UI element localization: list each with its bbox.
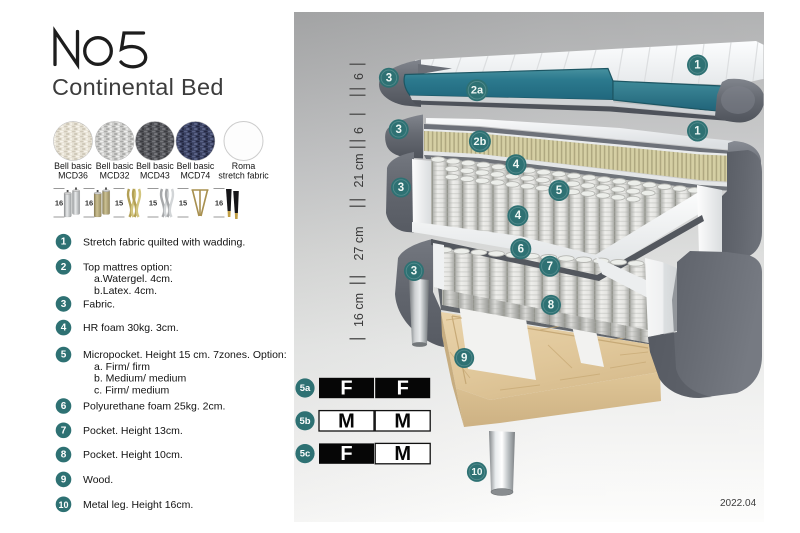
svg-text:Bell basic: Bell basic: [136, 161, 174, 171]
svg-text:7: 7: [547, 261, 553, 273]
svg-text:15: 15: [179, 199, 187, 208]
svg-text:Pocket. Height 10cm.: Pocket. Height 10cm.: [83, 449, 183, 461]
svg-text:M: M: [338, 410, 355, 432]
svg-text:8: 8: [61, 450, 67, 461]
svg-text:F: F: [340, 378, 352, 400]
svg-text:6: 6: [352, 127, 366, 134]
svg-text:F: F: [340, 443, 352, 465]
svg-text:5: 5: [61, 350, 67, 361]
svg-text:1: 1: [694, 126, 701, 138]
svg-text:6: 6: [61, 401, 67, 412]
svg-text:Metal leg. Height 16cm.: Metal leg. Height 16cm.: [83, 499, 193, 511]
svg-text:10: 10: [471, 467, 483, 478]
svg-text:2: 2: [61, 262, 67, 273]
svg-text:5b: 5b: [299, 416, 310, 427]
svg-text:Bell basic: Bell basic: [96, 161, 134, 171]
svg-text:M: M: [394, 443, 411, 465]
svg-text:8: 8: [548, 299, 555, 311]
svg-text:9: 9: [61, 474, 67, 485]
svg-text:Bell basic: Bell basic: [177, 161, 215, 171]
svg-text:stretch fabric: stretch fabric: [218, 171, 269, 181]
svg-text:Wood.: Wood.: [83, 474, 113, 486]
svg-text:16 cm: 16 cm: [352, 293, 366, 327]
svg-text:9: 9: [461, 353, 467, 365]
svg-text:7: 7: [61, 425, 67, 436]
svg-text:16: 16: [215, 199, 223, 208]
svg-text:2b: 2b: [473, 136, 486, 148]
svg-text:3: 3: [395, 124, 401, 136]
svg-text:15: 15: [115, 199, 123, 208]
svg-text:Stretch fabric quilted with wa: Stretch fabric quilted with wadding.: [83, 236, 245, 248]
svg-text:4: 4: [513, 159, 520, 171]
svg-text:a. Firm/ firm: a. Firm/ firm: [94, 361, 150, 373]
svg-text:5c: 5c: [300, 449, 311, 460]
svg-text:c. Firm/ medium: c. Firm/ medium: [94, 384, 170, 396]
svg-text:Pocket. Height 13cm.: Pocket. Height 13cm.: [83, 425, 183, 437]
svg-text:27 cm: 27 cm: [352, 226, 366, 260]
svg-text:MCD36: MCD36: [58, 171, 88, 181]
svg-text:Fabric.: Fabric.: [83, 299, 115, 311]
svg-text:5: 5: [556, 185, 563, 197]
svg-text:3: 3: [386, 72, 392, 84]
svg-text:3: 3: [411, 266, 417, 278]
svg-text:MCD74: MCD74: [180, 171, 210, 181]
svg-text:16: 16: [55, 199, 63, 208]
svg-text:2022.04: 2022.04: [720, 498, 757, 509]
svg-text:21 cm: 21 cm: [352, 153, 366, 187]
svg-text:Polyurethane foam 25kg. 2cm.: Polyurethane foam 25kg. 2cm.: [83, 401, 225, 413]
svg-text:6: 6: [518, 243, 524, 255]
svg-text:1: 1: [61, 237, 67, 248]
svg-text:Continental Bed: Continental Bed: [52, 74, 224, 100]
svg-text:3: 3: [61, 299, 67, 310]
svg-text:16: 16: [85, 199, 93, 208]
svg-text:a.Watergel. 4cm.: a.Watergel. 4cm.: [94, 273, 173, 285]
svg-text:15: 15: [149, 199, 157, 208]
svg-text:2a: 2a: [471, 85, 484, 97]
svg-text:MCD32: MCD32: [100, 171, 130, 181]
svg-text:b.Latex. 4cm.: b.Latex. 4cm.: [94, 285, 157, 297]
svg-text:Bell basic: Bell basic: [54, 161, 92, 171]
svg-text:6: 6: [352, 73, 366, 80]
svg-text:4: 4: [61, 323, 67, 334]
svg-text:10: 10: [58, 500, 68, 510]
svg-text:Roma: Roma: [232, 161, 256, 171]
svg-text:Top mattres option:: Top mattres option:: [83, 261, 172, 273]
svg-text:M: M: [394, 410, 411, 432]
svg-text:Micropocket. Height 15 cm. 7zo: Micropocket. Height 15 cm. 7zones. Optio…: [83, 349, 287, 361]
svg-text:3: 3: [398, 182, 404, 194]
svg-text:b. Medium/ medium: b. Medium/ medium: [94, 373, 186, 385]
svg-text:F: F: [397, 378, 409, 400]
svg-text:HR foam 30kg. 3cm.: HR foam 30kg. 3cm.: [83, 322, 179, 334]
svg-text:4: 4: [515, 210, 522, 222]
svg-text:5a: 5a: [300, 383, 311, 394]
svg-text:1: 1: [694, 60, 701, 72]
svg-text:MCD43: MCD43: [140, 171, 170, 181]
